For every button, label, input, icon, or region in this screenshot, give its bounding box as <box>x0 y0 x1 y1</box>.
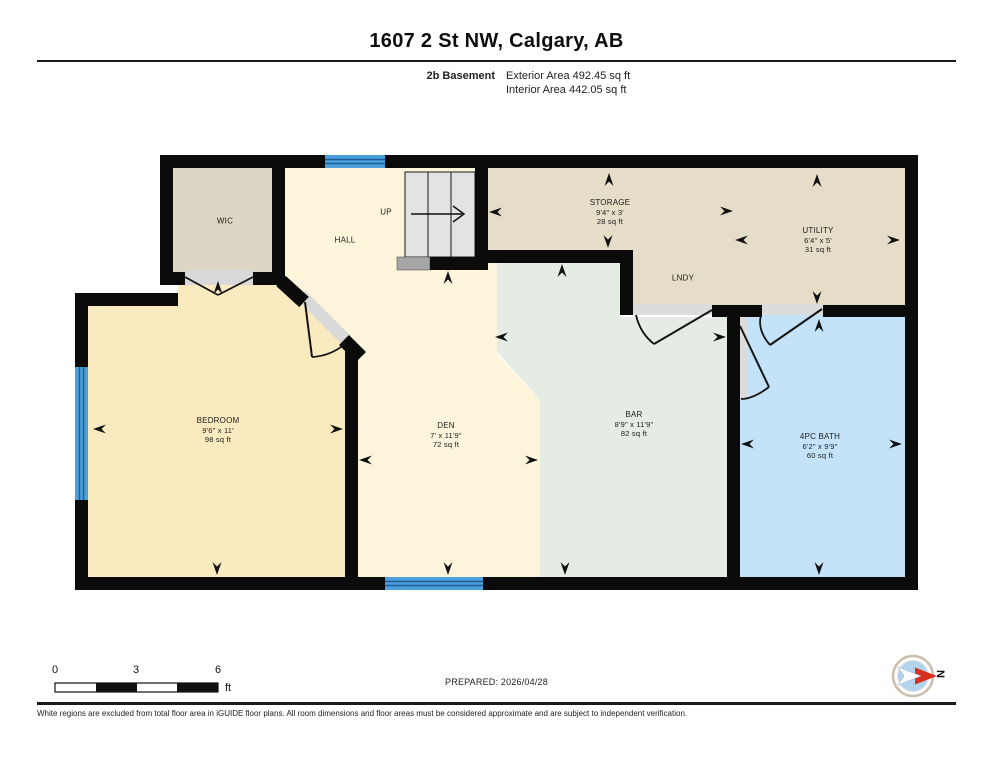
wall-bedroom-top <box>75 293 178 306</box>
staircase <box>397 172 475 270</box>
prepared-date: PREPARED: 2026/04/28 <box>0 677 993 687</box>
room-label-den: DEN 7' x 11'9" 72 sq ft <box>430 421 462 450</box>
hall-window <box>325 155 385 168</box>
room-label-bar: BAR 8'9" x 11'9" 82 sq ft <box>615 410 654 439</box>
wall-wic-hall <box>272 155 285 285</box>
den-window <box>385 577 483 590</box>
scale-label-0: 0 <box>52 664 58 676</box>
disclaimer-text: White regions are excluded from total fl… <box>37 709 967 718</box>
stairs-up-label: UP <box>380 207 392 217</box>
wall-wic-bottom-stub-left <box>160 272 185 285</box>
north-label: N <box>934 670 946 678</box>
floor-plan <box>0 0 993 768</box>
room-label-laundry: LNDY <box>672 273 694 283</box>
wall-bedroom-den <box>345 350 358 577</box>
floorplan-page: 1607 2 St NW, Calgary, AB 2b Basement Ex… <box>0 0 993 768</box>
wall-laundry-left <box>620 250 633 315</box>
scale-label-3: 3 <box>133 664 139 676</box>
room-label-storage: STORAGE 9'4" x 3' 28 sq ft <box>590 198 630 227</box>
compass-icon <box>893 656 937 696</box>
wall-below-stairs <box>430 257 488 270</box>
wall-bottom <box>75 577 918 590</box>
room-label-wic: WIC <box>217 216 233 226</box>
room-label-bath: 4PC BATH 6'2" x 9'9" 60 sq ft <box>800 432 840 461</box>
room-label-bedroom: BEDROOM 9'6" x 11' 98 sq ft <box>197 416 240 445</box>
wall-storage-bottom <box>480 250 633 263</box>
stairs-landing <box>397 257 430 270</box>
wall-left-lower <box>75 500 88 577</box>
bath-door-threshold <box>762 304 823 315</box>
bar-door-threshold <box>633 304 712 315</box>
scale-label-6: 6 <box>215 664 221 676</box>
wall-right <box>905 155 918 590</box>
wall-laundry-bottom <box>712 305 762 317</box>
wall-wic-left <box>160 155 173 285</box>
room-label-utility: UTILITY 6'4" x 5' 31 sq ft <box>802 226 833 255</box>
footer-divider <box>37 702 956 705</box>
room-label-hall: HALL <box>335 235 356 245</box>
wall-bath-top <box>823 305 918 317</box>
wall-bar-bath <box>727 317 740 577</box>
bedroom-window <box>75 367 88 500</box>
